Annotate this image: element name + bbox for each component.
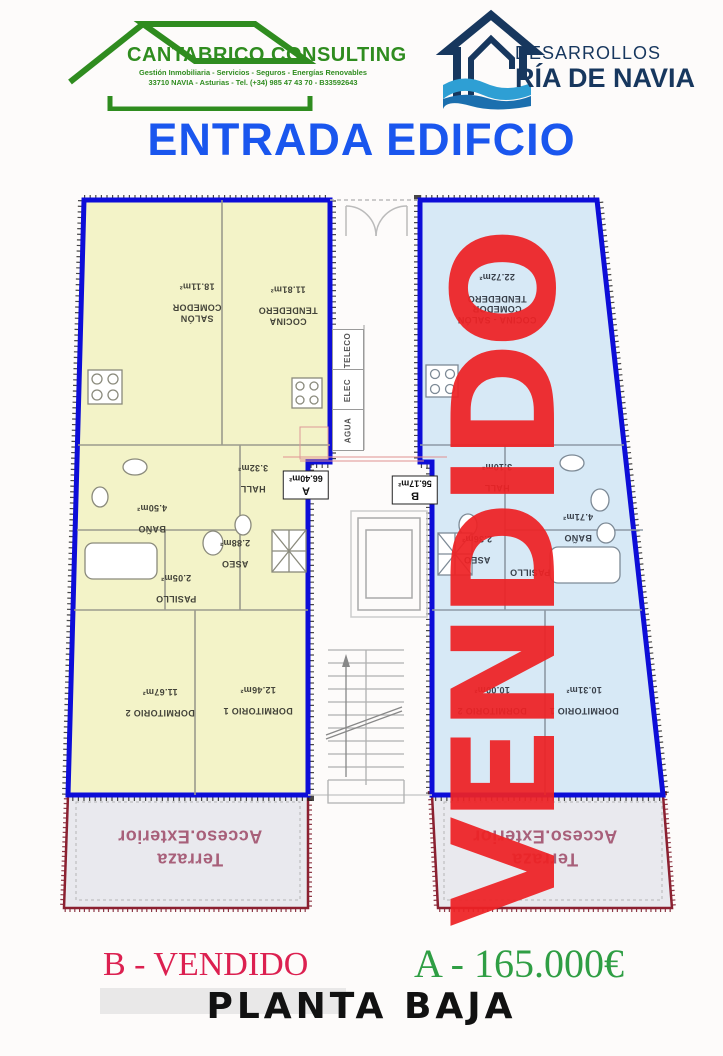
flyer-page: CANTABRICO CONSULTING Gestión Inmobiliar… xyxy=(0,0,723,1056)
cantabrico-tagline: Gestión Inmobiliaria - Servicios - Segur… xyxy=(113,68,393,77)
utility-box-elec: ELEC xyxy=(332,369,364,411)
room-name: DORMITORIO 1 xyxy=(549,705,618,716)
ria-line1: DESARROLLOS xyxy=(515,43,661,64)
room-name: ASEO xyxy=(220,558,250,569)
room-name: ASEO xyxy=(462,554,492,565)
room-name: COCINA TENDEDERO xyxy=(258,305,317,327)
stove-icon xyxy=(292,378,322,408)
room-name: HALL xyxy=(482,482,512,493)
cantabrico-address: 33710 NAVIA - Asturias - Tel. (+34) 985 … xyxy=(113,78,393,87)
unit-letter: A xyxy=(289,484,323,497)
unit-badge-b: B 56.17m² xyxy=(392,476,438,505)
room-area: 11.67m² xyxy=(125,686,194,697)
room-label-b-cocina-salon: COCINA - SALÓN COMEDOR TENDEDERO 22.72m² xyxy=(458,260,537,336)
room-label-a-bano: BAÑO 4.50m² xyxy=(137,491,167,545)
sink-icon xyxy=(560,455,584,471)
utility-label: TELECO xyxy=(344,332,353,367)
room-name: DORMITORIO 2 xyxy=(457,705,526,716)
room-name: BAÑO xyxy=(137,523,167,534)
staircase xyxy=(326,650,404,803)
room-name: HALL xyxy=(238,483,268,494)
room-name: DORMITORIO 1 xyxy=(223,705,292,716)
utility-box-teleco: TELECO xyxy=(332,329,364,371)
room-area: 11.81m² xyxy=(258,283,317,294)
room-name: PASILLO xyxy=(510,567,550,578)
room-area: 22.72m² xyxy=(458,271,537,282)
room-label-a-salon: SALÓN COMEDOR 18.11m² xyxy=(172,270,221,335)
room-label-a-cocina: COCINA TENDEDERO 11.81m² xyxy=(258,273,317,338)
bidet-icon xyxy=(597,523,615,543)
room-area: 10.31m² xyxy=(549,684,618,695)
floor-label: PLANTA BAJA xyxy=(0,986,723,1027)
cantabrico-name: CANTABRICO CONSULTING xyxy=(127,44,407,67)
room-area: 10.00m² xyxy=(457,684,526,695)
ria-de-navia-logo: DESARROLLOS RÍA DE NAVIA xyxy=(435,5,720,113)
room-label-b-aseo: ASEO 2.36m² xyxy=(462,522,492,576)
room-label-a-pasillo: PASILLO 2.05m² xyxy=(156,561,196,615)
floorplan-drawing xyxy=(0,195,723,935)
sink-icon xyxy=(123,459,147,475)
unit-area: 56.17m² xyxy=(398,479,432,489)
ria-line2: RÍA DE NAVIA xyxy=(515,63,695,94)
room-area: 4.71m² xyxy=(563,511,593,522)
terraza-label-a: Terraza Acceso.Exterior xyxy=(118,826,263,871)
room-label-a-dormitorio1: DORMITORIO 1 12.46m² xyxy=(223,673,292,727)
room-area: 2.36m² xyxy=(462,533,492,544)
toilet-icon xyxy=(92,487,108,507)
room-area: 2.05m² xyxy=(156,572,196,583)
cantabrico-logo: CANTABRICO CONSULTING Gestión Inmobiliar… xyxy=(55,6,390,111)
unit-badge-a: A 66.40m² xyxy=(283,471,329,500)
utility-box-agua: AGUA xyxy=(332,409,364,451)
terraza-label-b: Terraza Acceso.Exterior xyxy=(473,826,618,871)
room-name: COCINA - SALÓN COMEDOR TENDEDERO xyxy=(458,293,537,325)
room-area: 3.10m² xyxy=(482,461,512,472)
room-label-a-hall: HALL 3.32m² xyxy=(238,451,268,505)
floor-plan: SALÓN COMEDOR 18.11m² COCINA TENDEDERO 1… xyxy=(0,195,723,935)
utility-label: AGUA xyxy=(344,417,353,443)
room-area: 3.32m² xyxy=(238,462,268,473)
utility-label: ELEC xyxy=(344,378,353,401)
room-name: SALÓN COMEDOR xyxy=(172,302,221,324)
unit-b-status: B - VENDIDO xyxy=(103,946,308,984)
room-label-b-bano: BAÑO 4.71m² xyxy=(563,500,593,554)
room-name: PASILLO xyxy=(156,593,196,604)
room-label-b-hall: HALL 3.10m² xyxy=(482,450,512,504)
room-label-b-dormitorio2: DORMITORIO 2 10.00m² xyxy=(457,673,526,727)
unit-a-price: A - 165.000€ xyxy=(414,940,624,987)
room-name: DORMITORIO 2 xyxy=(125,707,194,718)
unit-area: 66.40m² xyxy=(289,474,323,484)
room-label-b-pasillo: PASILLO xyxy=(510,545,550,588)
room-label-a-dormitorio2: DORMITORIO 2 11.67m² xyxy=(125,675,194,729)
room-area: 12.46m² xyxy=(223,684,292,695)
room-area: 4.50m² xyxy=(137,502,167,513)
room-label-a-aseo: ASEO 2.88m² xyxy=(220,526,250,580)
bathtub-icon xyxy=(85,543,157,579)
toilet-icon xyxy=(591,489,609,511)
room-area: 2.88m² xyxy=(220,537,250,548)
room-label-b-dormitorio1: DORMITORIO 1 10.31m² xyxy=(549,673,618,727)
unit-letter: B xyxy=(398,489,432,502)
page-title: ENTRADA EDIFCIO xyxy=(0,114,723,166)
room-area: 18.11m² xyxy=(172,280,221,291)
room-name: BAÑO xyxy=(563,532,593,543)
